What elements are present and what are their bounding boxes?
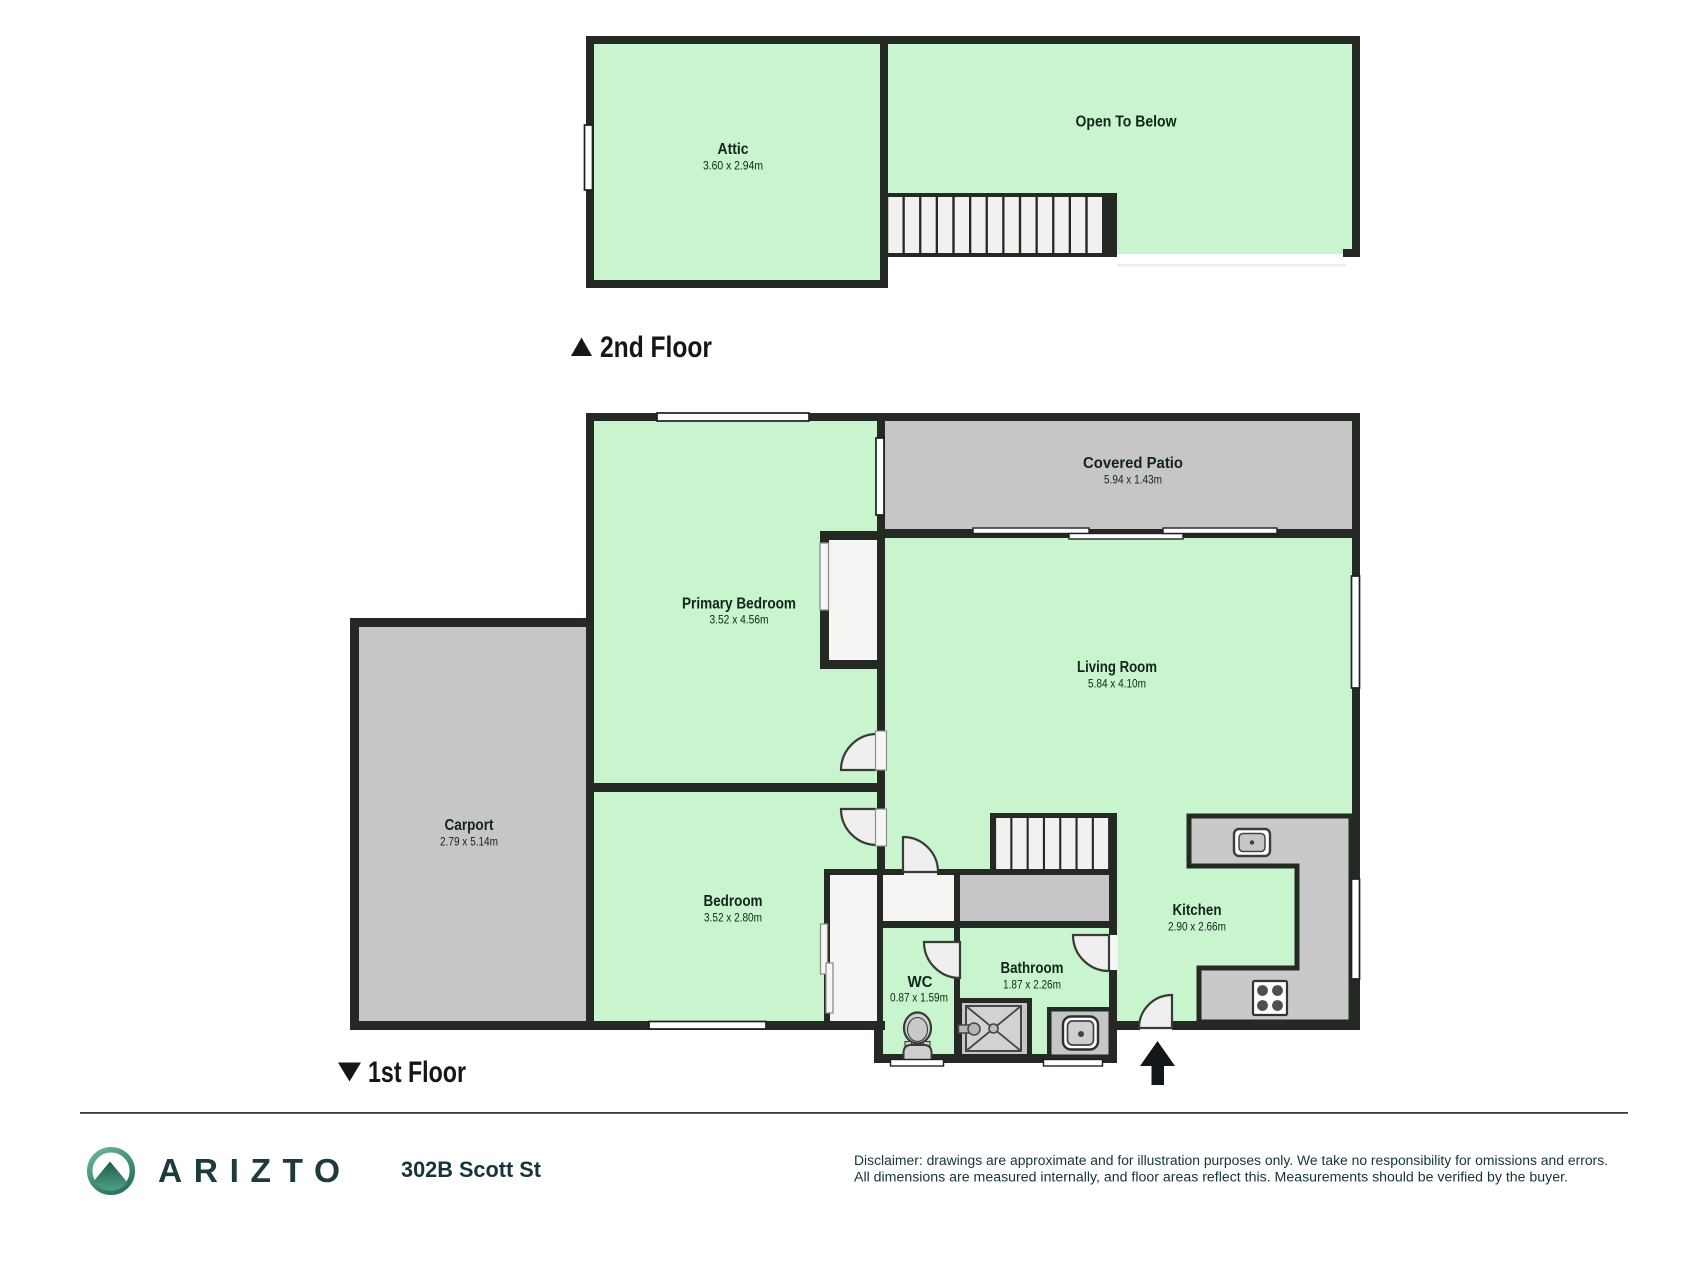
svg-text:2.90 x 2.66m: 2.90 x 2.66m [1168,920,1226,934]
svg-text:Carport: Carport [445,817,495,834]
svg-text:Primary Bedroom: Primary Bedroom [682,596,796,613]
svg-text:1.87 x 2.26m: 1.87 x 2.26m [1003,978,1061,992]
svg-text:5.94 x 1.43m: 5.94 x 1.43m [1104,473,1162,487]
svg-text:5.84 x 4.10m: 5.84 x 4.10m [1088,677,1146,691]
svg-text:2nd Floor: 2nd Floor [600,331,712,364]
svg-text:0.87 x 1.59m: 0.87 x 1.59m [890,991,948,1005]
svg-text:3.52 x 2.80m: 3.52 x 2.80m [704,911,762,925]
svg-text:Living Room: Living Room [1077,659,1157,676]
svg-text:Bathroom: Bathroom [1001,960,1064,977]
svg-text:2.79 x 5.14m: 2.79 x 5.14m [440,835,498,849]
svg-text:Bedroom: Bedroom [704,893,763,910]
svg-text:Kitchen: Kitchen [1173,902,1222,919]
svg-text:Covered Patio: Covered Patio [1083,455,1183,472]
svg-text:302B Scott St: 302B Scott St [401,1157,542,1182]
svg-text:Attic: Attic [718,141,749,158]
svg-text:3.52 x 4.56m: 3.52 x 4.56m [710,613,769,627]
svg-text:Open To Below: Open To Below [1076,114,1177,131]
svg-text:All dimensions are measured in: All dimensions are measured internally, … [854,1170,1568,1185]
svg-text:1st Floor: 1st Floor [368,1056,466,1089]
svg-text:ARIZTO: ARIZTO [158,1153,340,1190]
svg-text:WC: WC [908,974,933,991]
svg-text:Disclaimer: drawings are appro: Disclaimer: drawings are approximate and… [854,1153,1608,1168]
svg-text:3.60 x 2.94m: 3.60 x 2.94m [703,159,763,173]
